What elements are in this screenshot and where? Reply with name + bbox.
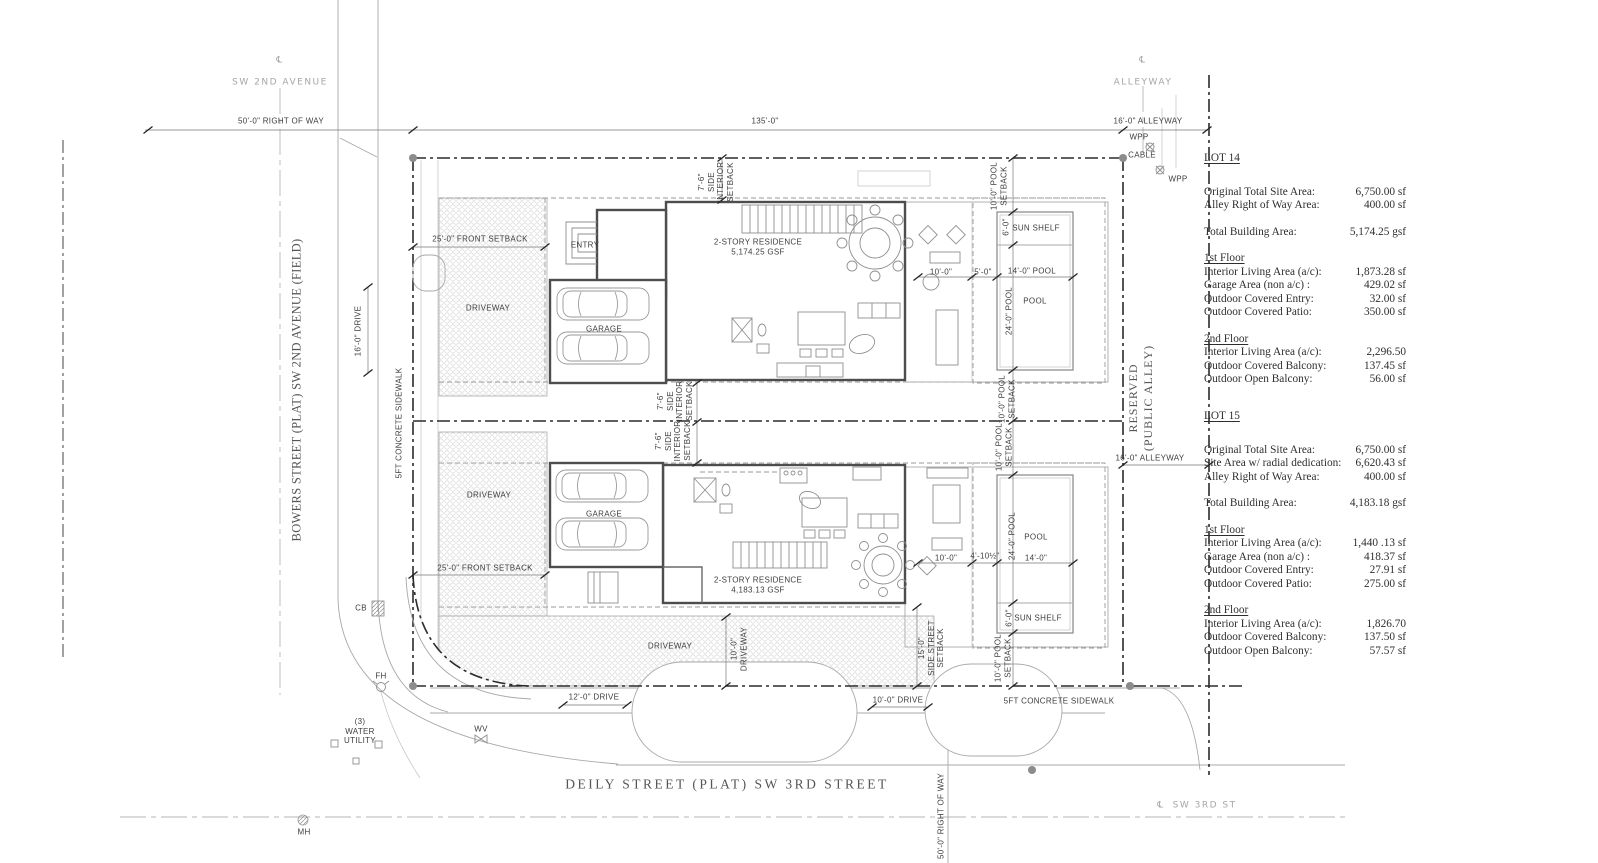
area-label: Outdoor Covered Entry: [1204, 564, 1314, 578]
lot14-side-setback-top: 7'-6" SIDE INTERIOR SETBACK [697, 162, 735, 203]
floor-heading: 1st Floor [1204, 252, 1406, 266]
lot14-dim-14-pool: 14'-0" POOL [1008, 266, 1056, 276]
lot15-side-setback-top: 7'-6" SIDE INTERIOR SETBACK [654, 421, 692, 462]
mh-symbol [298, 815, 308, 825]
area-label: Outdoor Covered Patio: [1204, 578, 1312, 592]
area-row: Alley Right of Way Area:400.00 sf [1204, 199, 1406, 213]
area-value: 2,296.50 [1366, 346, 1406, 360]
area-label: Interior Living Area (a/c): [1204, 266, 1322, 280]
area-value: 137.50 sf [1364, 631, 1406, 645]
area-label: Alley Right of Way Area: [1204, 471, 1320, 485]
area-row: Outdoor Open Balcony:56.00 sf [1204, 373, 1406, 387]
area-value: 1,826.70 [1366, 618, 1406, 632]
area-value: 350.00 sf [1364, 306, 1406, 320]
area-label: Outdoor Covered Balcony: [1204, 360, 1326, 374]
lot15-dim-10: 10'-0" [935, 553, 957, 563]
wpp-label: WPP [1129, 132, 1148, 142]
lot15-area-table: LOT 15 Original Total Site Area:6,750.00… [1204, 410, 1406, 658]
area-row: Garage Area (non a/c) :429.02 sf [1204, 279, 1406, 293]
area-label: Original Total Site Area: [1204, 444, 1315, 458]
lot15-pool-label: POOL [1024, 532, 1047, 542]
lot14-dim-24-pool: 24'-0" POOL [1004, 287, 1014, 335]
area-value: 6,620.43 sf [1355, 457, 1406, 471]
lot14-sun-shelf-label: SUN SHELF [1012, 223, 1060, 233]
water-utility-label: (3) WATER UTILITY [344, 717, 376, 746]
area-row: Outdoor Covered Balcony:137.50 sf [1204, 631, 1406, 645]
fh-label: FH [375, 671, 386, 681]
lot14-dim-5: 5'-0" [974, 267, 991, 277]
area-value: 6,750.00 sf [1355, 444, 1406, 458]
water-utility-box [353, 758, 359, 764]
wv-label: WV [474, 724, 488, 734]
lot14-pool-setback-top: 10'-0" POOL SETBACK [990, 162, 1009, 210]
dim-row50-bottom: 50'-0" RIGHT OF WAY [936, 773, 946, 859]
area-row: Site Area w/ radial dedication:6,620.43 … [1204, 457, 1406, 471]
area-value: 56.00 sf [1370, 373, 1406, 387]
lot14-driveway-label: DRIVEWAY [466, 303, 510, 313]
lot14-pool-label: POOL [1023, 296, 1046, 306]
area-label: Garage Area (non a/c) : [1204, 551, 1310, 565]
dim-alleyway-mid: 16'-0" ALLEYWAY [1116, 453, 1185, 463]
site-plan-page: ℄ SW 2ND AVENUE ℄ ALLEYWAY BOWERS STREET… [0, 0, 1598, 863]
lot15-residence-label: 2-STORY RESIDENCE 4,183.13 GSF [714, 576, 802, 595]
area-value: 32.00 sf [1370, 293, 1406, 307]
area-label: Interior Living Area (a/c): [1204, 346, 1322, 360]
area-label: Total Building Area: [1204, 497, 1297, 511]
lot15-front-setback-label: 25'-0" FRONT SETBACK [437, 563, 533, 573]
lot15-pool-setback-top: 10'-0" POOL SETBACK [995, 423, 1014, 471]
street-name: SW 3RD ST [1173, 801, 1237, 812]
area-row: Interior Living Area (a/c):1,873.28 sf [1204, 266, 1406, 280]
deily-street-label: DEILY STREET (PLAT) SW 3RD STREET [565, 777, 889, 792]
lot-title: LOT 14 [1204, 152, 1406, 166]
dim-alleyway-top: 16'-0" ALLEYWAY [1114, 116, 1183, 126]
cable-label: CABLE [1128, 150, 1156, 160]
lot14-dim-10: 10'-0" [930, 267, 952, 277]
area-row: Original Total Site Area:6,750.00 sf [1204, 444, 1406, 458]
area-row: Total Building Area:5,174.25 gsf [1204, 226, 1406, 240]
area-row: Outdoor Covered Balcony:137.45 sf [1204, 360, 1406, 374]
area-label: Total Building Area: [1204, 226, 1297, 240]
area-value: 6,750.00 sf [1355, 186, 1406, 200]
area-label: Outdoor Open Balcony: [1204, 373, 1313, 387]
mh-label: MH [297, 827, 310, 837]
lot15-driveway-lower-label: DRIVEWAY [648, 641, 692, 651]
water-utility-box [331, 740, 338, 747]
centerline-icon: ℄ [232, 56, 328, 67]
lot14-side-setback-bottom: 7'-6" SIDE INTERIOR SETBACK [656, 381, 694, 422]
area-value: 57.57 sf [1370, 645, 1406, 659]
lot14-patio-lounge [936, 310, 958, 365]
dim-row50-top: 50'-0" RIGHT OF WAY [238, 116, 324, 126]
area-label: Outdoor Covered Entry: [1204, 293, 1314, 307]
area-value: 275.00 sf [1364, 578, 1406, 592]
area-row: Outdoor Covered Patio:275.00 sf [1204, 578, 1406, 592]
lot15-driveway-dim: 10'-0" DRIVEWAY [730, 627, 749, 671]
area-row: Garage Area (non a/c) :418.37 sf [1204, 551, 1406, 565]
lot15-porch [588, 572, 618, 603]
area-row: Outdoor Covered Entry:27.91 sf [1204, 564, 1406, 578]
cb-symbol [372, 601, 384, 616]
cb-label: CB [355, 603, 367, 613]
lot14-garage-label: GARAGE [586, 324, 622, 334]
area-label: Interior Living Area (a/c): [1204, 618, 1322, 632]
dim-lot-width: 135'-0" [752, 116, 779, 126]
lot14-residence-label: 2-STORY RESIDENCE 5,174.25 GSF [714, 238, 802, 257]
area-row: Outdoor Covered Entry:32.00 sf [1204, 293, 1406, 307]
lot15-pool-setback-bottom: 10'-0" POOL SETBACK [994, 634, 1013, 682]
lot14-dim-6: 6'-0" [1001, 218, 1011, 235]
lot14-house [666, 202, 905, 380]
area-row: Alley Right of Way Area:400.00 sf [1204, 471, 1406, 485]
lot15-patio-lounge [933, 485, 960, 523]
area-value: 418.37 sf [1364, 551, 1406, 565]
area-label: Site Area w/ radial dedication: [1204, 457, 1341, 471]
lot15-dim-6: 6'-0" [1004, 609, 1014, 626]
area-row: Interior Living Area (a/c):1,440 .13 sf [1204, 537, 1406, 551]
centerline-icon: ℄ [1114, 56, 1173, 67]
area-value: 400.00 sf [1364, 199, 1406, 213]
street-name: SW 2ND AVENUE [232, 78, 328, 89]
bowers-street-label: BOWERS STREET (PLAT) SW 2ND AVENUE (FIEL… [290, 239, 305, 542]
dim-sidewalk-left: 5FT CONCRETE SIDEWALK [394, 368, 404, 479]
lot15-dim-4-10: 4'-10½" [970, 551, 999, 561]
area-value: 137.45 sf [1364, 360, 1406, 374]
floor-heading: 2nd Floor [1204, 604, 1406, 618]
lot15-side-street-setback: 15'-0" SIDE STREET SETBACK [917, 620, 946, 676]
lot14-entry-label: ENTRY [571, 240, 599, 250]
lot14-pool-setback-bottom: 10'-0" POOL SETBACK [998, 375, 1017, 423]
area-label: Alley Right of Way Area: [1204, 199, 1320, 213]
centerline-icon: ℄ [1157, 801, 1164, 812]
area-row: Interior Living Area (a/c):1,826.70 [1204, 618, 1406, 632]
floor-heading: 2nd Floor [1204, 333, 1406, 347]
area-row: Outdoor Open Balcony:57.57 sf [1204, 645, 1406, 659]
area-value: 4,183.18 gsf [1350, 497, 1406, 511]
area-label: Outdoor Open Balcony: [1204, 645, 1313, 659]
dim-sidewalk-bottom: 5FT CONCRETE SIDEWALK [1004, 696, 1115, 706]
area-label: Outdoor Covered Balcony: [1204, 631, 1326, 645]
area-value: 429.02 sf [1364, 279, 1406, 293]
lot15-dim-14: 14'-0" [1025, 553, 1047, 563]
area-row: Original Total Site Area:6,750.00 sf [1204, 186, 1406, 200]
area-value: 5,174.25 gsf [1350, 226, 1406, 240]
lot15-sun-shelf-label: SUN SHELF [1014, 613, 1062, 623]
lot14-area-table: LOT 14 Original Total Site Area:6,750.00… [1204, 152, 1406, 387]
area-row: Total Building Area:4,183.18 gsf [1204, 497, 1406, 511]
area-row: Outdoor Covered Patio:350.00 sf [1204, 306, 1406, 320]
dim-drive-10: 10'-0" DRIVE [873, 695, 924, 705]
wv-symbol [475, 735, 487, 743]
lot15-driveway-upper-label: DRIVEWAY [467, 490, 511, 500]
dim-drive-16: 16'-0" DRIVE [353, 306, 363, 357]
sw2nd-avenue-centerline-label: ℄ SW 2ND AVENUE [232, 45, 328, 100]
area-row: Interior Living Area (a/c):2,296.50 [1204, 346, 1406, 360]
area-value: 1,873.28 sf [1355, 266, 1406, 280]
sw3rd-centerline-label: ℄ SW 3RD ST [1157, 801, 1236, 812]
area-label: Original Total Site Area: [1204, 186, 1315, 200]
area-value: 27.91 sf [1370, 564, 1406, 578]
floor-heading: 1st Floor [1204, 524, 1406, 538]
lot14-front-setback-label: 25'-0" FRONT SETBACK [432, 234, 528, 244]
area-label: Garage Area (non a/c) : [1204, 279, 1310, 293]
alleyway-centerline-label: ℄ ALLEYWAY [1114, 45, 1173, 100]
reserved-public-alley-label: RESERVED (PUBLIC ALLEY) [1126, 345, 1156, 451]
area-label: Outdoor Covered Patio: [1204, 306, 1312, 320]
street-name: ALLEYWAY [1114, 78, 1173, 89]
lot15-dim-24-pool: 24'-0" POOL [1007, 512, 1017, 560]
lot-title: LOT 15 [1204, 410, 1406, 424]
dim-drive-12: 12'-0" DRIVE [569, 692, 620, 702]
area-value: 1,440 .13 sf [1353, 537, 1406, 551]
lot15-garage-label: GARAGE [586, 509, 622, 519]
wpp-label: WPP [1168, 174, 1187, 184]
area-label: Interior Living Area (a/c): [1204, 537, 1322, 551]
area-value: 400.00 sf [1364, 471, 1406, 485]
